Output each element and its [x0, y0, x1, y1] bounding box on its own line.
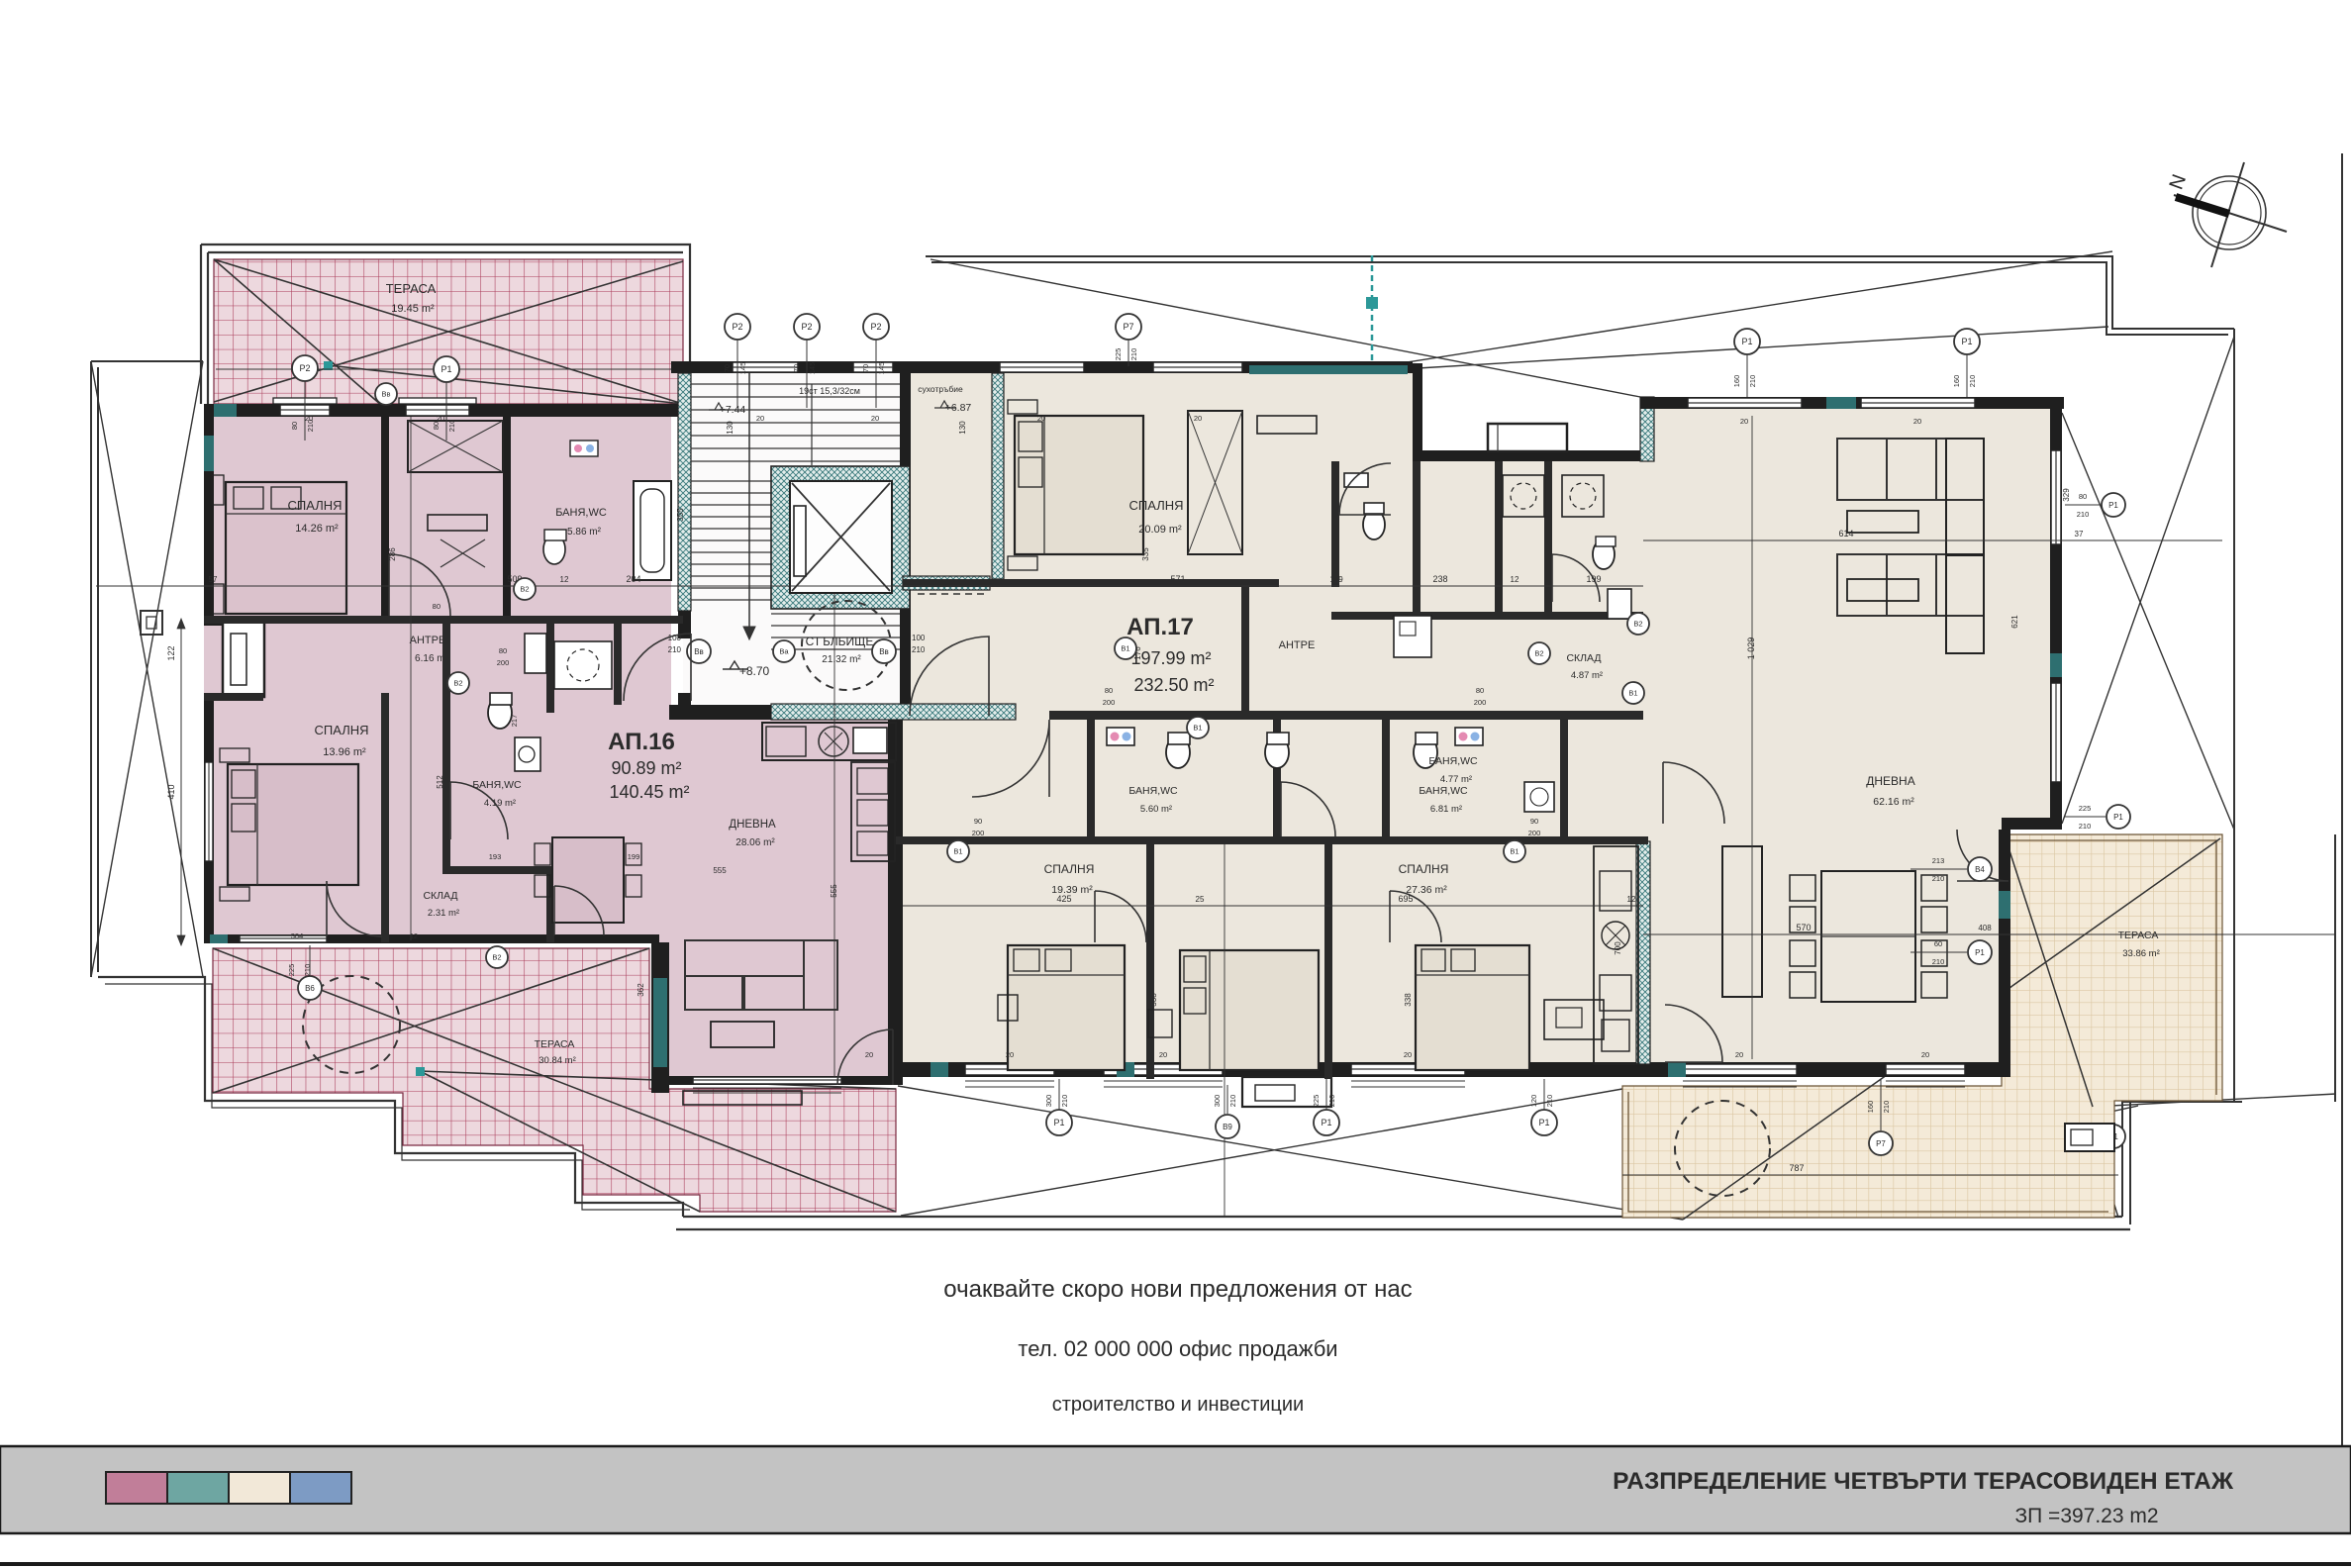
svg-text:АНТРЕ: АНТРЕ: [1279, 639, 1316, 651]
svg-text:+8.70: +8.70: [739, 664, 770, 678]
svg-text:200: 200: [1528, 829, 1541, 837]
svg-text:ТЕРАСА: ТЕРАСА: [386, 281, 437, 296]
svg-text:12: 12: [410, 933, 418, 940]
svg-text:210: 210: [1748, 375, 1757, 388]
svg-text:130: 130: [726, 421, 735, 435]
svg-text:РАЗПРЕДЕЛЕНИЕ ЧЕТВЪРТИ ТЕРАСОВ: РАЗПРЕДЕЛЕНИЕ ЧЕТВЪРТИ ТЕРАСОВИДЕН ЕТАЖ: [1613, 1468, 2234, 1495]
svg-text:80: 80: [433, 602, 441, 611]
svg-text:P1: P1: [2113, 813, 2123, 822]
svg-text:329: 329: [2062, 488, 2071, 502]
svg-text:25: 25: [1196, 895, 1205, 904]
svg-text:225: 225: [1114, 348, 1123, 361]
svg-text:140.45 m²: 140.45 m²: [609, 782, 689, 802]
svg-text:БАНЯ,WC: БАНЯ,WC: [1428, 755, 1478, 767]
svg-text:13.96 m²: 13.96 m²: [323, 746, 366, 758]
svg-text:555: 555: [713, 866, 727, 875]
svg-text:70: 70: [723, 364, 732, 372]
svg-text:60: 60: [1934, 939, 1942, 948]
svg-text:139: 139: [1329, 575, 1343, 584]
svg-text:425: 425: [1056, 894, 1071, 904]
svg-text:145: 145: [738, 362, 747, 375]
svg-text:300: 300: [1213, 1095, 1222, 1108]
svg-text:P1: P1: [441, 364, 451, 374]
svg-text:12: 12: [1627, 895, 1636, 904]
svg-text:210: 210: [912, 645, 926, 654]
svg-text:P1: P1: [2108, 501, 2118, 510]
svg-text:210: 210: [1932, 957, 1945, 966]
svg-text:210: 210: [1968, 375, 1977, 388]
svg-text:695: 695: [1398, 894, 1413, 904]
svg-text:80: 80: [499, 646, 507, 655]
svg-text:210: 210: [1228, 1095, 1237, 1108]
svg-text:В2: В2: [453, 679, 462, 688]
svg-text:В2: В2: [520, 585, 529, 594]
svg-text:210: 210: [447, 420, 456, 433]
svg-text:512: 512: [436, 775, 444, 789]
svg-text:197.99 m²: 197.99 m²: [1130, 648, 1211, 668]
svg-text:20: 20: [871, 414, 879, 423]
svg-text:100: 100: [912, 634, 926, 642]
svg-text:20: 20: [1006, 1050, 1014, 1059]
svg-text:СПАЛНЯ: СПАЛНЯ: [1399, 862, 1449, 876]
svg-text:строителство и инвестиции: строителство и инвестиции: [1052, 1394, 1304, 1416]
svg-text:210: 210: [1932, 874, 1945, 883]
svg-text:70: 70: [792, 364, 801, 372]
svg-text:ТЕРАСА: ТЕРАСА: [2118, 930, 2159, 941]
svg-text:В6: В6: [305, 984, 315, 993]
svg-text:1 029: 1 029: [1746, 637, 1756, 660]
svg-text:БАНЯ,WC: БАНЯ,WC: [1419, 785, 1468, 797]
svg-text:СКЛАД: СКЛАД: [423, 890, 457, 902]
svg-text:213: 213: [1932, 856, 1945, 865]
svg-text:571: 571: [1170, 574, 1185, 584]
svg-text:Вa: Вa: [779, 647, 789, 656]
svg-text:210: 210: [2079, 822, 2092, 831]
svg-text:122: 122: [166, 645, 176, 660]
svg-text:225: 225: [2079, 804, 2092, 813]
svg-text:57: 57: [209, 575, 218, 584]
svg-text:БАНЯ,WC: БАНЯ,WC: [472, 779, 522, 791]
svg-text:362: 362: [637, 983, 645, 997]
svg-text:20.09 m²: 20.09 m²: [1138, 524, 1182, 536]
svg-text:2.31 m²: 2.31 m²: [428, 908, 459, 919]
svg-text:210: 210: [303, 964, 312, 977]
svg-text:P1: P1: [1538, 1118, 1549, 1127]
svg-text:37: 37: [2075, 530, 2084, 539]
svg-text:20: 20: [1735, 1050, 1743, 1059]
svg-text:225: 225: [1312, 1095, 1321, 1108]
svg-text:80: 80: [2079, 492, 2087, 501]
svg-text:АП.16: АП.16: [608, 729, 675, 755]
svg-text:P1: P1: [1975, 948, 1985, 957]
svg-text:В1: В1: [1510, 847, 1518, 856]
svg-text:В2: В2: [1534, 649, 1543, 658]
svg-text:160: 160: [1866, 1101, 1875, 1114]
svg-text:12: 12: [1511, 575, 1519, 584]
svg-text:БАНЯ,WC: БАНЯ,WC: [1128, 785, 1178, 797]
svg-text:В4: В4: [1975, 865, 1985, 874]
svg-text:19ст 15,3/32см: 19ст 15,3/32см: [799, 386, 860, 396]
svg-text:200: 200: [1474, 698, 1487, 707]
svg-text:90: 90: [974, 817, 982, 826]
svg-text:210: 210: [1545, 1095, 1554, 1108]
svg-text:210: 210: [1129, 348, 1138, 361]
svg-text:90.89 m²: 90.89 m²: [611, 758, 681, 778]
svg-text:20: 20: [1921, 1050, 1929, 1059]
svg-text:Вв: Вв: [382, 390, 391, 399]
svg-text:P1: P1: [1321, 1118, 1331, 1127]
svg-text:сухотръбие: сухотръбие: [918, 384, 963, 394]
svg-text:145: 145: [808, 362, 817, 375]
svg-text:Вв: Вв: [879, 647, 889, 656]
svg-text:СПАЛНЯ: СПАЛНЯ: [1129, 498, 1184, 513]
svg-text:20: 20: [1740, 417, 1748, 426]
svg-text:СПАЛНЯ: СПАЛНЯ: [288, 498, 343, 513]
svg-text:160: 160: [1732, 375, 1741, 388]
svg-text:200: 200: [972, 829, 985, 837]
svg-text:В1: В1: [1193, 724, 1202, 733]
svg-text:19.45 m²: 19.45 m²: [391, 303, 435, 315]
svg-text:145: 145: [877, 362, 886, 375]
svg-text:62.16 m²: 62.16 m²: [1873, 796, 1914, 808]
svg-text:20: 20: [865, 1050, 873, 1059]
svg-text:232.50 m²: 232.50 m²: [1133, 675, 1214, 695]
svg-text:621: 621: [2010, 615, 2019, 629]
svg-text:700: 700: [1614, 941, 1622, 955]
svg-text:355: 355: [676, 508, 685, 522]
svg-text:СТЪЛБИЩЕ: СТЪЛБИЩЕ: [806, 635, 874, 648]
svg-text:225: 225: [287, 964, 296, 977]
svg-text:4.87 m²: 4.87 m²: [1571, 670, 1603, 681]
svg-text:СКЛАД: СКЛАД: [1566, 652, 1601, 664]
svg-text:БАНЯ,WC: БАНЯ,WC: [555, 507, 607, 519]
svg-text:P2: P2: [299, 363, 310, 373]
svg-text:20: 20: [305, 414, 313, 423]
svg-text:21.32 m²: 21.32 m²: [822, 654, 861, 665]
svg-text:СПАЛНЯ: СПАЛНЯ: [315, 723, 369, 737]
svg-text:410: 410: [166, 784, 176, 799]
svg-text:570: 570: [1796, 923, 1811, 932]
svg-text:338: 338: [1149, 993, 1158, 1007]
svg-text:В1: В1: [1121, 644, 1129, 653]
svg-text:20: 20: [1037, 414, 1045, 423]
svg-text:70: 70: [861, 364, 870, 372]
svg-text:199: 199: [628, 852, 640, 861]
svg-text:120: 120: [1529, 1095, 1538, 1108]
svg-text:200: 200: [497, 658, 510, 667]
svg-text:тел. 02 000 000 офис продажби: тел. 02 000 000 офис продажби: [1018, 1336, 1337, 1361]
svg-text:P7: P7: [1876, 1139, 1886, 1148]
svg-text:238: 238: [1432, 574, 1447, 584]
svg-text:P1: P1: [1741, 337, 1752, 346]
svg-text:210: 210: [1327, 1095, 1336, 1108]
svg-text:200: 200: [428, 614, 441, 623]
svg-text:20: 20: [1194, 414, 1202, 423]
svg-text:90: 90: [1530, 817, 1538, 826]
svg-text:6.16 m²: 6.16 m²: [415, 653, 449, 664]
svg-text:АНТРЕ: АНТРЕ: [410, 635, 446, 646]
svg-text:В1: В1: [953, 847, 962, 856]
svg-text:12: 12: [560, 575, 569, 584]
svg-text:14.26 m²: 14.26 m²: [295, 523, 339, 535]
svg-text:В2: В2: [492, 953, 501, 962]
svg-text:АП.17: АП.17: [1127, 614, 1194, 640]
svg-text:P1: P1: [1053, 1118, 1064, 1127]
svg-text:199: 199: [1586, 574, 1601, 584]
svg-text:5.86 m²: 5.86 m²: [567, 527, 602, 538]
svg-text:210: 210: [1060, 1095, 1069, 1108]
svg-text:30.84 m²: 30.84 m²: [539, 1055, 576, 1066]
svg-text:286: 286: [388, 547, 397, 561]
svg-text:P2: P2: [870, 322, 881, 332]
svg-text:очаквайте скоро нови предложен: очаквайте скоро нови предложения от нас: [943, 1276, 1412, 1303]
svg-text:300: 300: [1044, 1095, 1053, 1108]
svg-text:P1: P1: [1961, 337, 1972, 346]
svg-text:787: 787: [1789, 1163, 1804, 1173]
svg-text:4.77 m²: 4.77 m²: [1440, 774, 1472, 785]
svg-text:160: 160: [1952, 375, 1961, 388]
svg-text:335: 335: [1141, 547, 1150, 561]
svg-text:СПАЛНЯ: СПАЛНЯ: [1044, 862, 1095, 876]
svg-text:80: 80: [290, 422, 299, 430]
svg-text:В2: В2: [1633, 620, 1642, 629]
svg-text:6.81 m²: 6.81 m²: [1430, 804, 1462, 815]
svg-text:ДНЕВНА: ДНЕВНА: [1866, 774, 1914, 788]
svg-text:80: 80: [1476, 686, 1484, 695]
svg-text:20: 20: [1913, 417, 1921, 426]
svg-text:P7: P7: [1123, 322, 1133, 332]
svg-text:P2: P2: [732, 322, 742, 332]
svg-text:20: 20: [1159, 1050, 1167, 1059]
svg-text:193: 193: [489, 852, 502, 861]
svg-text:210: 210: [1882, 1101, 1891, 1114]
svg-text:ТЕРАСА: ТЕРАСА: [535, 1038, 575, 1050]
svg-text:304: 304: [291, 931, 304, 940]
svg-text:P2: P2: [801, 322, 812, 332]
svg-text:210: 210: [2077, 510, 2090, 519]
svg-text:В1: В1: [1628, 689, 1637, 698]
svg-text:130: 130: [958, 421, 967, 435]
svg-text:217: 217: [510, 715, 519, 728]
svg-text:408: 408: [1978, 924, 1992, 932]
svg-text:210: 210: [668, 645, 682, 654]
svg-text:200: 200: [1103, 698, 1116, 707]
svg-text:204: 204: [626, 574, 640, 584]
svg-text:80: 80: [1105, 686, 1113, 695]
svg-text:В9: В9: [1223, 1123, 1232, 1131]
svg-text:555: 555: [830, 884, 838, 898]
svg-text:80: 80: [432, 422, 441, 430]
svg-text:20: 20: [437, 414, 444, 423]
svg-text:20: 20: [756, 414, 764, 423]
svg-text:33.86 m²: 33.86 m²: [2122, 948, 2160, 959]
svg-text:28.06 m²: 28.06 m²: [735, 837, 775, 848]
svg-text:338: 338: [1404, 993, 1413, 1007]
svg-text:614: 614: [1838, 529, 1853, 539]
svg-text:4.19 m²: 4.19 m²: [484, 798, 516, 809]
svg-text:ДНЕВНА: ДНЕВНА: [729, 819, 776, 831]
svg-text:20: 20: [1404, 1050, 1412, 1059]
svg-text:5.60 m²: 5.60 m²: [1140, 804, 1172, 815]
svg-text:Вв: Вв: [694, 647, 704, 656]
svg-text:ЗП =397.23 m2: ЗП =397.23 m2: [2014, 1505, 2158, 1527]
